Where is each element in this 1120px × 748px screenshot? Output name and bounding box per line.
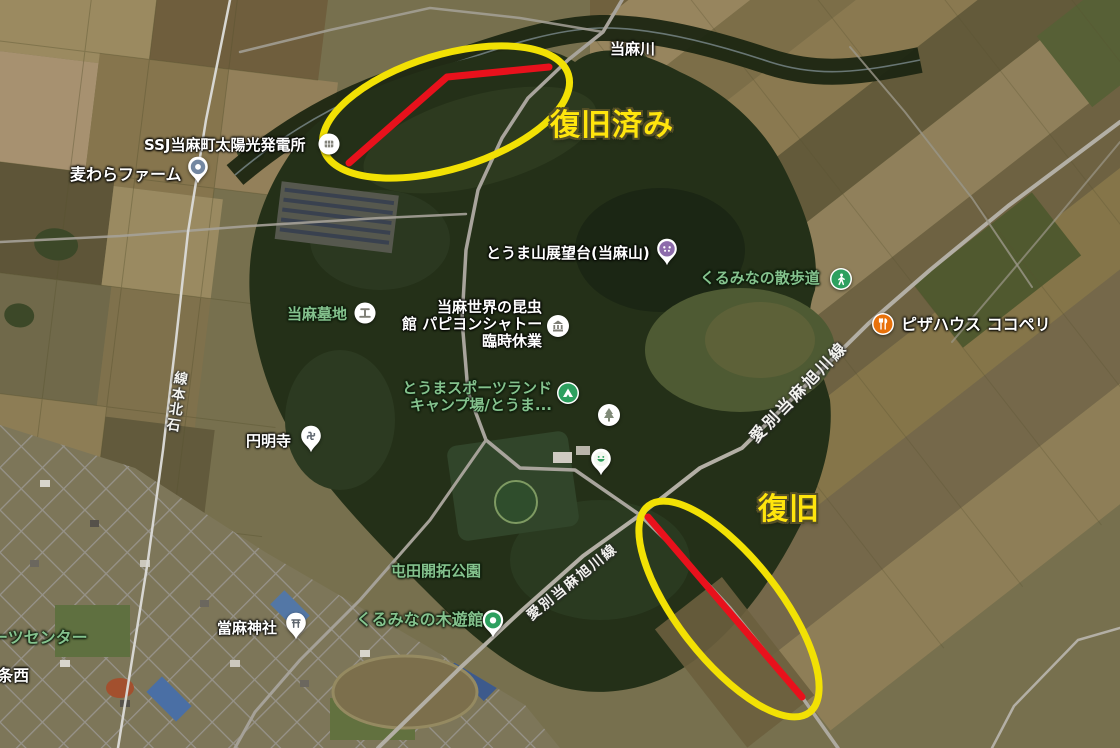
restored-annotation-text: 復旧済み — [550, 109, 674, 143]
sports-center-label[interactable]: ーツセンター — [0, 629, 88, 647]
park-tree-icon[interactable] — [597, 403, 621, 431]
shrine-torii-pin-icon[interactable] — [284, 611, 309, 646]
walking-trail-hiker-icon[interactable] — [829, 267, 853, 295]
farm-pin-icon[interactable] — [186, 155, 211, 190]
shrine-label[interactable]: 當麻神社 — [217, 620, 277, 637]
walking-trail-label[interactable]: くるみなの散歩道 — [700, 270, 820, 287]
wood-play-museum-label[interactable]: くるみなの木遊館 — [356, 611, 484, 629]
museum-building-icon[interactable] — [546, 314, 570, 342]
observatory-label[interactable]: とうま山展望台(当麻山) — [486, 245, 650, 262]
cemetery-grave-icon[interactable] — [354, 302, 377, 329]
temple-manji-pin-icon[interactable] — [299, 424, 324, 459]
block-josai-label: 4条西 — [0, 667, 29, 685]
restaurant-icon[interactable] — [871, 312, 895, 340]
river-label: 当麻川 — [610, 41, 655, 58]
observatory-pin-icon[interactable] — [655, 237, 680, 272]
restoration-annotation-text: 復旧 — [758, 493, 820, 527]
cemetery-label[interactable]: 当麻墓地 — [287, 306, 347, 323]
pioneer-park-label: 屯田開拓公園 — [391, 563, 481, 580]
map-viewport[interactable]: 当麻川 復旧済み 復旧 SSJ当麻町太陽光発電所 麦わらファーム とうま山展望台… — [0, 0, 1120, 748]
insect-museum-label[interactable]: 当麻世界の昆虫 館 パピヨンシャトー 臨時休業 — [402, 299, 542, 350]
sports-land-label[interactable]: とうまスポーツランド キャンプ場/とうま... — [402, 380, 552, 414]
solar-plant-icon[interactable] — [318, 133, 341, 160]
solar-plant-label[interactable]: SSJ当麻町太陽光発電所 — [144, 137, 306, 154]
wood-play-museum-pin-icon[interactable] — [480, 608, 506, 644]
playground-smiley-pin-icon[interactable] — [589, 447, 614, 482]
temple-label[interactable]: 円明寺 — [246, 433, 291, 450]
campground-tent-icon[interactable] — [556, 381, 580, 409]
pizza-house-label[interactable]: ピザハウス ココペリ — [901, 316, 1051, 334]
farm-label[interactable]: 麦わらファーム — [70, 166, 182, 184]
